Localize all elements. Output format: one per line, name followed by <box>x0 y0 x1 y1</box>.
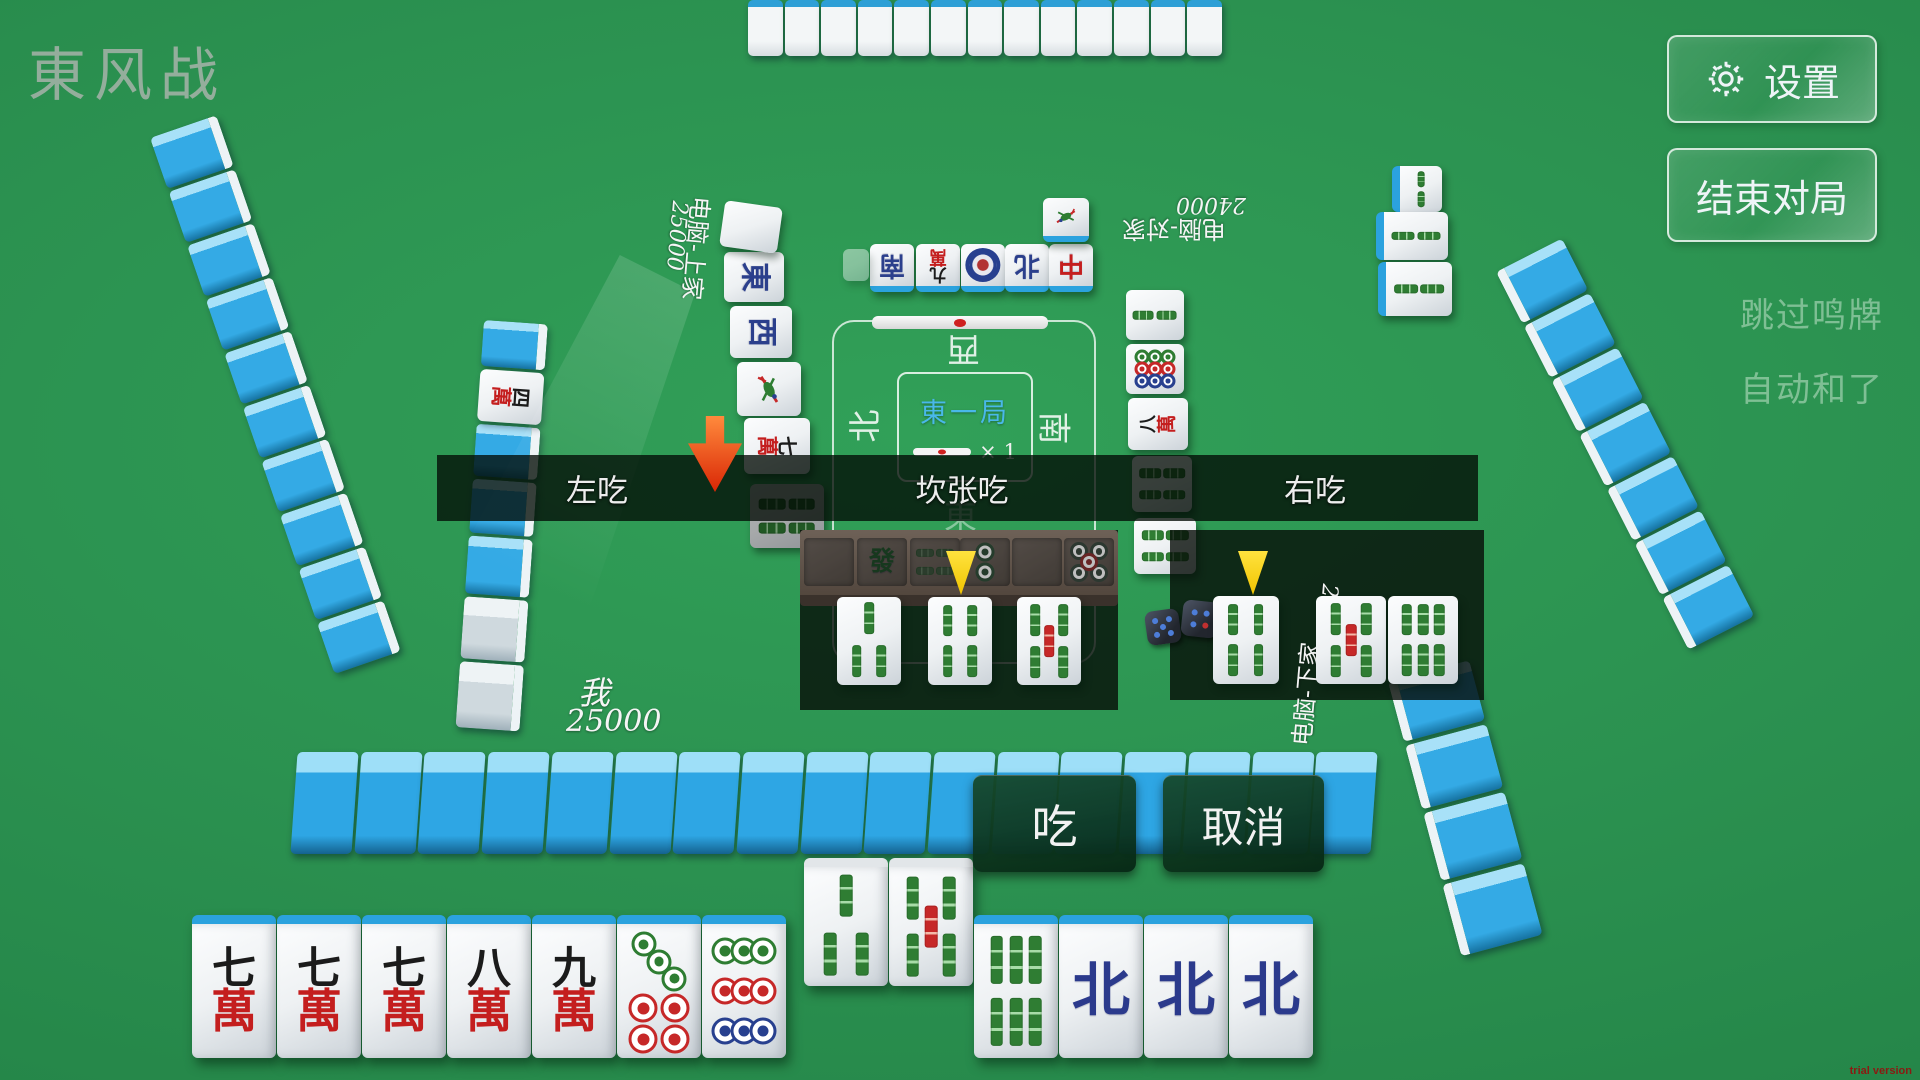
discard-top-5 <box>1043 198 1089 242</box>
call-right-chi[interactable]: 右吃 <box>1284 466 1346 511</box>
hand-tile-5[interactable] <box>617 915 701 1058</box>
discard-left-2 <box>737 362 801 416</box>
gear-icon <box>1704 57 1748 101</box>
hand-tile-6[interactable] <box>702 915 786 1058</box>
right-player-meld-2 <box>1378 262 1452 316</box>
riichi-stick <box>872 316 1048 329</box>
discard-top-3: 北 <box>1005 244 1049 292</box>
skip-call-toggle[interactable]: 跳过鸣牌 <box>1740 288 1884 337</box>
discard-top-0: 南 <box>870 244 914 292</box>
hand-tile-11[interactable]: 北 <box>1144 915 1228 1058</box>
right-player-meld-0 <box>1392 166 1442 212</box>
seat-wind-top: 西 <box>947 328 980 376</box>
ghost-tile <box>843 249 869 281</box>
dead-wall: 四萬 <box>456 320 548 731</box>
hand-tile-4[interactable]: 九萬 <box>532 915 616 1058</box>
discard-right-1 <box>1126 344 1184 394</box>
own-discard-flat-0 <box>804 538 854 586</box>
tile-wall <box>150 115 401 674</box>
chi-preview-middle-tile-0[interactable] <box>837 597 901 685</box>
seat-wind-left: 北 <box>839 410 887 443</box>
mahjong-table: 東风战 设置 结束对局 跳过鸣牌 自动和了 東一局 × 1 西 北 南 東 左吃… <box>0 0 1920 1080</box>
hand-tile-10[interactable]: 北 <box>1059 915 1143 1058</box>
player-self-score: 25000 <box>566 704 661 739</box>
own-discard-flat-1: 發 <box>857 538 907 586</box>
seat-wind-right: 南 <box>1033 412 1081 445</box>
hand-tile-2[interactable]: 七萬 <box>362 915 446 1058</box>
sparrow-icon <box>1050 204 1082 231</box>
round-label: 東一局 <box>920 391 1010 430</box>
discard-top-2 <box>961 244 1005 292</box>
dora-indicator-tile: 四萬 <box>477 369 544 425</box>
own-discard-flat-5 <box>1064 538 1114 586</box>
hand-tile-0[interactable]: 七萬 <box>192 915 276 1058</box>
call-left-chi[interactable]: 左吃 <box>566 466 628 511</box>
discard-top-1: 九萬 <box>916 244 960 292</box>
chi-pair-tile-1[interactable] <box>1388 596 1458 684</box>
end-game-label: 结束对局 <box>1696 168 1848 223</box>
right-player-meld-1 <box>1376 212 1448 260</box>
chi-button[interactable]: 吃 <box>973 775 1136 872</box>
own-discard-flat-4 <box>1012 538 1062 586</box>
discard-right-0 <box>1126 290 1184 340</box>
trial-version-watermark: trial version <box>1850 1065 1912 1077</box>
player-top-score: 24000 <box>1176 192 1246 217</box>
discard-left-0: 東 <box>724 252 784 302</box>
hand-tile-3[interactable]: 八萬 <box>447 915 531 1058</box>
chi-called-tile[interactable] <box>1213 596 1279 684</box>
chi-preview-middle-tile-2[interactable] <box>1017 597 1081 685</box>
settings-button[interactable]: 设置 <box>1667 35 1877 123</box>
hand-tile-8[interactable] <box>889 858 973 986</box>
cancel-button[interactable]: 取消 <box>1163 775 1324 872</box>
hand-tile-1[interactable]: 七萬 <box>277 915 361 1058</box>
discard-left-1: 西 <box>730 306 792 358</box>
player-top-name: 电脑-对家 <box>1122 214 1226 249</box>
chi-preview-middle-tile-1[interactable] <box>928 597 992 685</box>
chi-pair-tile-0[interactable] <box>1316 596 1386 684</box>
tile-wall <box>1496 238 1754 649</box>
game-title: 東风战 <box>28 28 226 112</box>
discard-left-edge-tile <box>719 200 783 254</box>
dice-1 <box>1144 608 1182 646</box>
top-wall <box>748 0 1222 56</box>
hand-tile-7[interactable] <box>804 858 888 986</box>
end-game-button[interactable]: 结束对局 <box>1667 148 1877 242</box>
settings-label: 设置 <box>1764 52 1840 107</box>
discard-top-4: 中 <box>1049 244 1093 292</box>
hand-tile-12[interactable]: 北 <box>1229 915 1313 1058</box>
sparrow-icon <box>750 367 788 412</box>
call-middle-chi[interactable]: 坎张吃 <box>916 466 1009 511</box>
hand-tile-9[interactable] <box>974 915 1058 1058</box>
auto-win-toggle[interactable]: 自动和了 <box>1740 362 1884 411</box>
tile-wall <box>1388 660 1543 956</box>
call-option-bar: 左吃 坎张吃 右吃 <box>437 455 1478 521</box>
discard-right-2: 八萬 <box>1128 398 1188 450</box>
